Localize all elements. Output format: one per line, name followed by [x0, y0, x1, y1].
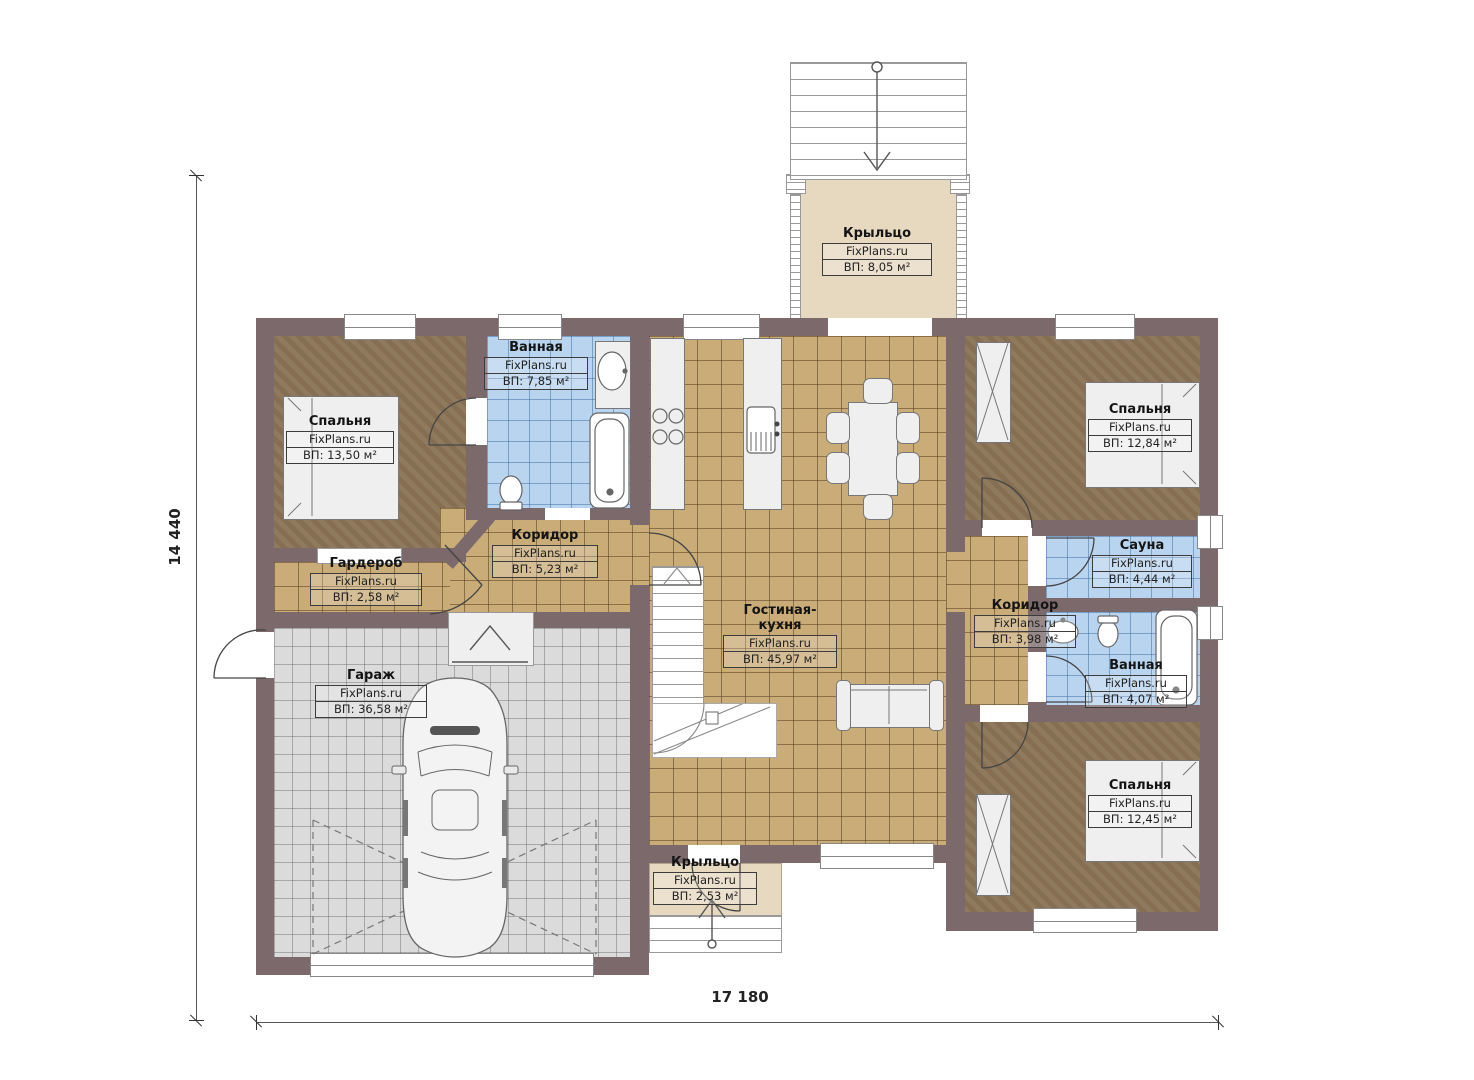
dining-table: [848, 402, 898, 496]
sofa-armrest: [836, 680, 851, 731]
door-opening: [982, 520, 1032, 536]
door-opening: [256, 632, 274, 678]
entry-step: [448, 612, 534, 666]
porch-railing: [790, 194, 801, 320]
room-name: Сауна: [1092, 538, 1192, 553]
dimension-line-vertical: [196, 175, 197, 1020]
stair-landing: [652, 703, 777, 758]
wall: [1032, 520, 1200, 536]
wardrobe-cabinet: [976, 794, 1011, 896]
room-name: Спальня: [286, 414, 394, 429]
window: [1055, 314, 1135, 340]
chair: [826, 412, 850, 444]
wall: [964, 705, 980, 722]
room-name: Гардероб: [310, 556, 422, 571]
door-opening: [828, 318, 932, 336]
wall: [946, 912, 1033, 931]
dimension-line-horizontal: [256, 1022, 1218, 1023]
room-site: FixPlans.ru: [1089, 796, 1191, 812]
exterior-stairs-top: [790, 62, 967, 180]
interior-stairs: [652, 566, 704, 705]
room-label-bedroom-bottom-right: Спальня FixPlans.ru ВП: 12,45 м²: [1088, 778, 1192, 828]
room-site: FixPlans.ru: [975, 616, 1075, 632]
room-label-corridor-left: Коридор FixPlans.ru ВП: 5,23 м²: [492, 528, 598, 578]
room-name: Гараж: [315, 668, 427, 683]
chair: [896, 412, 920, 444]
room-area: ВП: 12,45 м²: [1089, 812, 1191, 827]
bathroom-counter: [595, 341, 631, 409]
room-area: ВП: 36,58 м²: [316, 702, 426, 717]
room-site: FixPlans.ru: [724, 636, 836, 652]
window: [1197, 515, 1223, 549]
room-area: ВП: 7,85 м²: [485, 374, 587, 389]
window: [683, 314, 760, 340]
room-label-bathroom-left: Ванная FixPlans.ru ВП: 7,85 м²: [484, 340, 588, 390]
window: [498, 314, 562, 340]
room-area: ВП: 4,44 м²: [1093, 572, 1191, 587]
window: [344, 314, 416, 340]
wall: [1135, 912, 1218, 931]
door-opening: [466, 398, 487, 445]
room-name: Гостиная-кухня: [723, 603, 837, 633]
wardrobe-cabinet: [976, 342, 1011, 443]
wall: [256, 612, 448, 628]
wall: [466, 445, 487, 520]
room-name: Ванная: [484, 340, 588, 355]
room-area: ВП: 13,50 м²: [287, 448, 393, 463]
wall: [946, 612, 965, 912]
wall: [630, 585, 649, 957]
room-area: ВП: 2,53 м²: [654, 889, 756, 904]
chair: [863, 494, 893, 520]
room-label-living-kitchen: Гостиная-кухня FixPlans.ru ВП: 45,97 м²: [723, 603, 837, 668]
door-opening: [980, 705, 1028, 722]
room-area: ВП: 12,84 м²: [1089, 436, 1191, 451]
room-label-bedroom-left: Спальня FixPlans.ru ВП: 13,50 м²: [286, 414, 394, 464]
room-name: Крыльцо: [653, 855, 757, 870]
sofa-armrest: [929, 680, 944, 731]
room-site: FixPlans.ru: [823, 244, 931, 260]
room-label-porch-bottom: Крыльцо FixPlans.ru ВП: 2,53 м²: [653, 855, 757, 905]
room-area: ВП: 3,98 м²: [975, 632, 1075, 647]
room-site: FixPlans.ru: [287, 432, 393, 448]
wall: [630, 318, 649, 525]
room-area: ВП: 5,23 м²: [493, 562, 597, 577]
room-label-bathroom-right: Ванная FixPlans.ru ВП: 4,07 м²: [1085, 658, 1187, 708]
room-area: ВП: 2,58 м²: [311, 590, 421, 605]
room-site: FixPlans.ru: [1089, 420, 1191, 436]
room-site: FixPlans.ru: [485, 358, 587, 374]
room-area: ВП: 8,05 м²: [823, 260, 931, 275]
wall: [532, 612, 649, 628]
room-site: FixPlans.ru: [316, 686, 426, 702]
chair: [896, 452, 920, 484]
chair: [863, 378, 893, 404]
room-name: Коридор: [492, 528, 598, 543]
wall: [946, 318, 965, 552]
wall: [487, 508, 545, 520]
floor-plan-page: 14 440 17 180: [0, 0, 1474, 1080]
room-name: Ванная: [1085, 658, 1187, 673]
room-name: Спальня: [1088, 778, 1192, 793]
window: [1197, 606, 1223, 640]
chair: [826, 452, 850, 484]
wall: [964, 520, 982, 536]
room-label-corridor-right: Коридор FixPlans.ru ВП: 3,98 м²: [974, 598, 1076, 648]
dimension-width-label: 17 180: [670, 988, 810, 1006]
room-site: FixPlans.ru: [1086, 676, 1186, 692]
garage-gate: [310, 953, 594, 977]
room-name: Коридор: [974, 598, 1076, 613]
wall: [590, 508, 630, 520]
room-area: ВП: 4,07 м²: [1086, 692, 1186, 707]
room-site: FixPlans.ru: [311, 574, 421, 590]
exterior-stairs-bottom: [649, 915, 782, 953]
room-site: FixPlans.ru: [1093, 556, 1191, 572]
kitchen-island: [743, 338, 782, 510]
room-label-porch-top: Крыльцо FixPlans.ru ВП: 8,05 м²: [822, 226, 932, 276]
door-opening: [545, 508, 590, 520]
window: [820, 843, 934, 869]
room-label-garage: Гараж FixPlans.ru ВП: 36,58 м²: [315, 668, 427, 718]
door-opening: [1028, 652, 1046, 702]
sofa: [840, 684, 940, 728]
room-name: Спальня: [1088, 402, 1192, 417]
porch-railing: [956, 194, 967, 320]
room-area: ВП: 45,97 м²: [724, 652, 836, 667]
room-site: FixPlans.ru: [654, 873, 756, 889]
room-label-bedroom-top-right: Спальня FixPlans.ru ВП: 12,84 м²: [1088, 402, 1192, 452]
room-site: FixPlans.ru: [493, 546, 597, 562]
room-label-wardrobe: Гардероб FixPlans.ru ВП: 2,58 м²: [310, 556, 422, 606]
dimension-height-label: 14 440: [166, 492, 184, 582]
room-label-sauna: Сауна FixPlans.ru ВП: 4,44 м²: [1092, 538, 1192, 588]
room-name: Крыльцо: [822, 226, 932, 241]
window: [1033, 908, 1137, 933]
kitchen-counter: [650, 338, 685, 510]
door-opening: [1028, 538, 1046, 586]
